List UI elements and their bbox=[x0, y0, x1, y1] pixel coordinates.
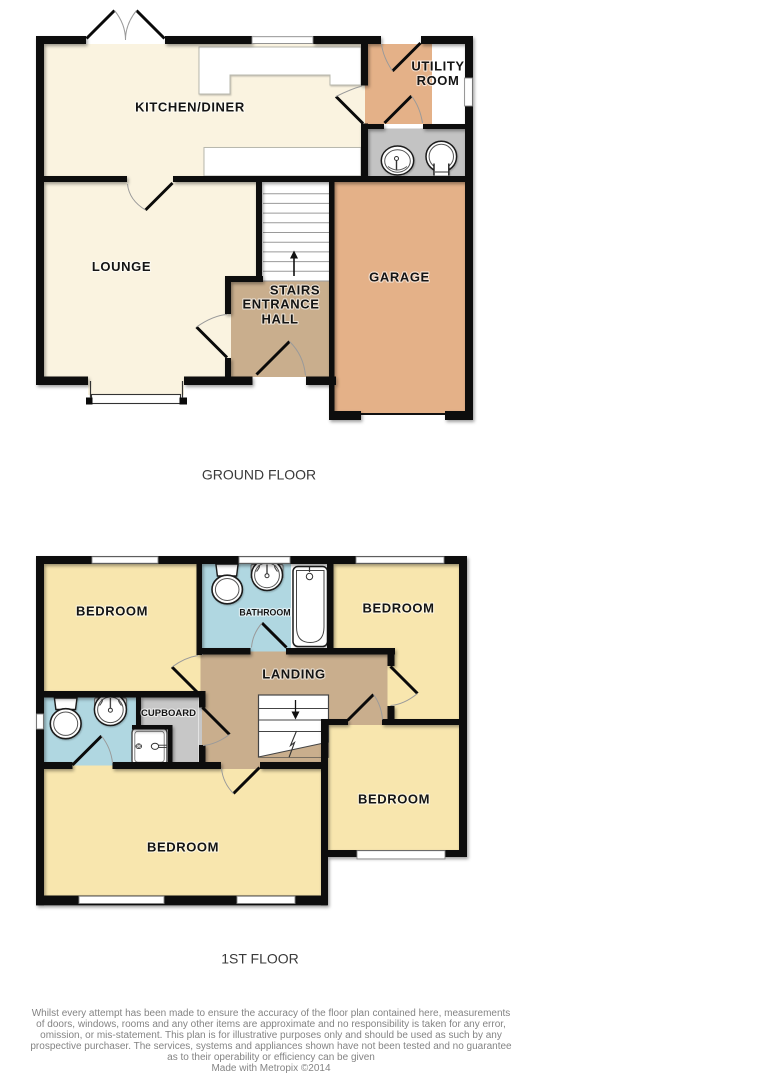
svg-text:prospective purchaser. The ser: prospective purchaser. The services, sys… bbox=[30, 1041, 512, 1052]
svg-text:Made with Metropix ©2014: Made with Metropix ©2014 bbox=[211, 1063, 331, 1074]
svg-text:LANDING: LANDING bbox=[262, 667, 325, 682]
svg-text:STAIRS: STAIRS bbox=[270, 283, 320, 298]
svg-text:KITCHEN/DINER: KITCHEN/DINER bbox=[135, 100, 245, 115]
svg-text:HALL: HALL bbox=[261, 312, 298, 327]
svg-text:BEDROOM: BEDROOM bbox=[147, 840, 219, 855]
svg-text:LOUNGE: LOUNGE bbox=[92, 259, 151, 274]
svg-text:GARAGE: GARAGE bbox=[369, 270, 430, 285]
svg-text:BEDROOM: BEDROOM bbox=[76, 604, 148, 619]
svg-text:UTILITY: UTILITY bbox=[411, 59, 464, 74]
svg-text:GROUND FLOOR: GROUND FLOOR bbox=[202, 467, 316, 483]
svg-text:omission, or mis-statement. Th: omission, or mis-statement. This plan is… bbox=[40, 1030, 502, 1041]
svg-text:ROOM: ROOM bbox=[417, 73, 460, 88]
svg-text:of doors, windows, rooms and a: of doors, windows, rooms and any other i… bbox=[36, 1019, 506, 1030]
svg-text:BATHROOM: BATHROOM bbox=[239, 607, 290, 617]
svg-text:Whilst every attempt has been: Whilst every attempt has been made to en… bbox=[32, 1008, 511, 1019]
svg-text:1ST FLOOR: 1ST FLOOR bbox=[221, 951, 299, 967]
svg-text:CUPBOARD: CUPBOARD bbox=[141, 708, 196, 719]
svg-text:BEDROOM: BEDROOM bbox=[362, 601, 434, 616]
svg-text:BEDROOM: BEDROOM bbox=[358, 792, 430, 807]
svg-text:as to their operability or eff: as to their operability or efficiency ca… bbox=[167, 1052, 375, 1063]
svg-text:ENTRANCE: ENTRANCE bbox=[242, 297, 319, 312]
